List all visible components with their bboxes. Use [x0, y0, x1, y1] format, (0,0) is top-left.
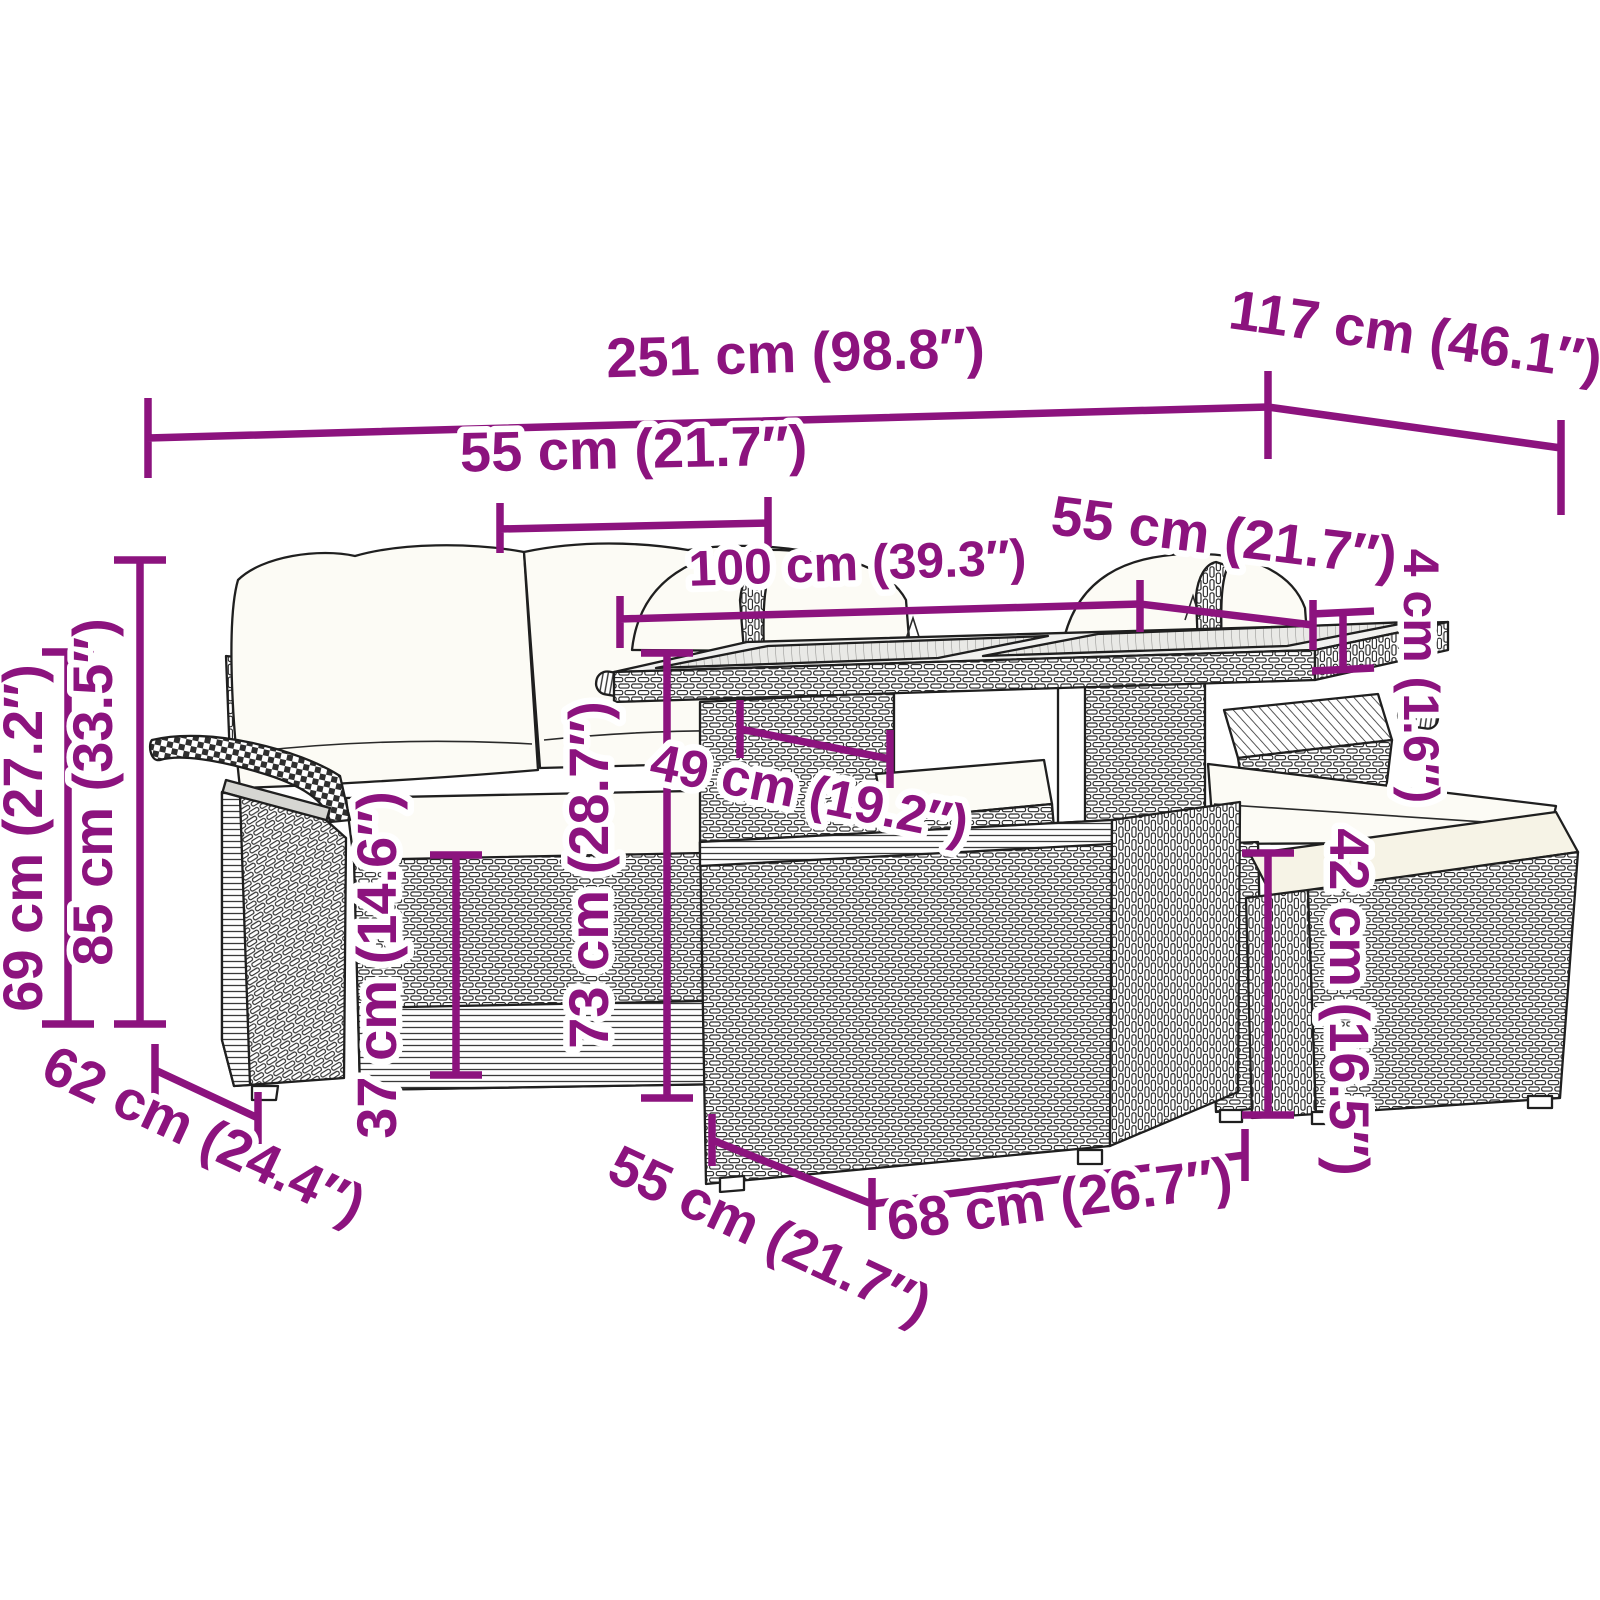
dim-armrest-height-label: 69 cm (27.2″) — [0, 664, 54, 1011]
stool-foot — [1528, 1096, 1552, 1108]
dim-stool-height-label: 42 cm (16.5″) — [1318, 828, 1381, 1175]
dim-overall-depth-label: 117 cm (46.1″) — [1225, 277, 1600, 392]
stool-right — [1246, 812, 1578, 1124]
dim-seat-section-width-label: 55 cm (21.7″) — [459, 413, 808, 483]
table-box-front — [700, 820, 1112, 1184]
dim-seat-height-label: 37 cm (14.6″) — [345, 791, 408, 1138]
dim-overall-width-label: 251 cm (98.8″) — [605, 316, 985, 390]
dimension-diagram: 251 cm (98.8″) 117 cm (46.1″) 55 cm (21.… — [0, 0, 1600, 1600]
lounger-foot — [1220, 1110, 1242, 1122]
table-box-side — [1110, 802, 1240, 1146]
dim-overall-depth-line — [1268, 407, 1561, 515]
dim-tabletop-thickness-label: 4 cm (1.6″) — [1393, 549, 1449, 804]
dim-table-height-label: 73 cm (28.7″) — [557, 701, 620, 1048]
stool-front-column — [1246, 890, 1316, 1118]
diagram-canvas: 251 cm (98.8″) 117 cm (46.1″) 55 cm (21.… — [0, 0, 1600, 1600]
dim-table-length-label: 100 cm (39.3″) — [688, 529, 1028, 597]
dim-backrest-height-label: 85 cm (33.5″) — [61, 618, 124, 965]
